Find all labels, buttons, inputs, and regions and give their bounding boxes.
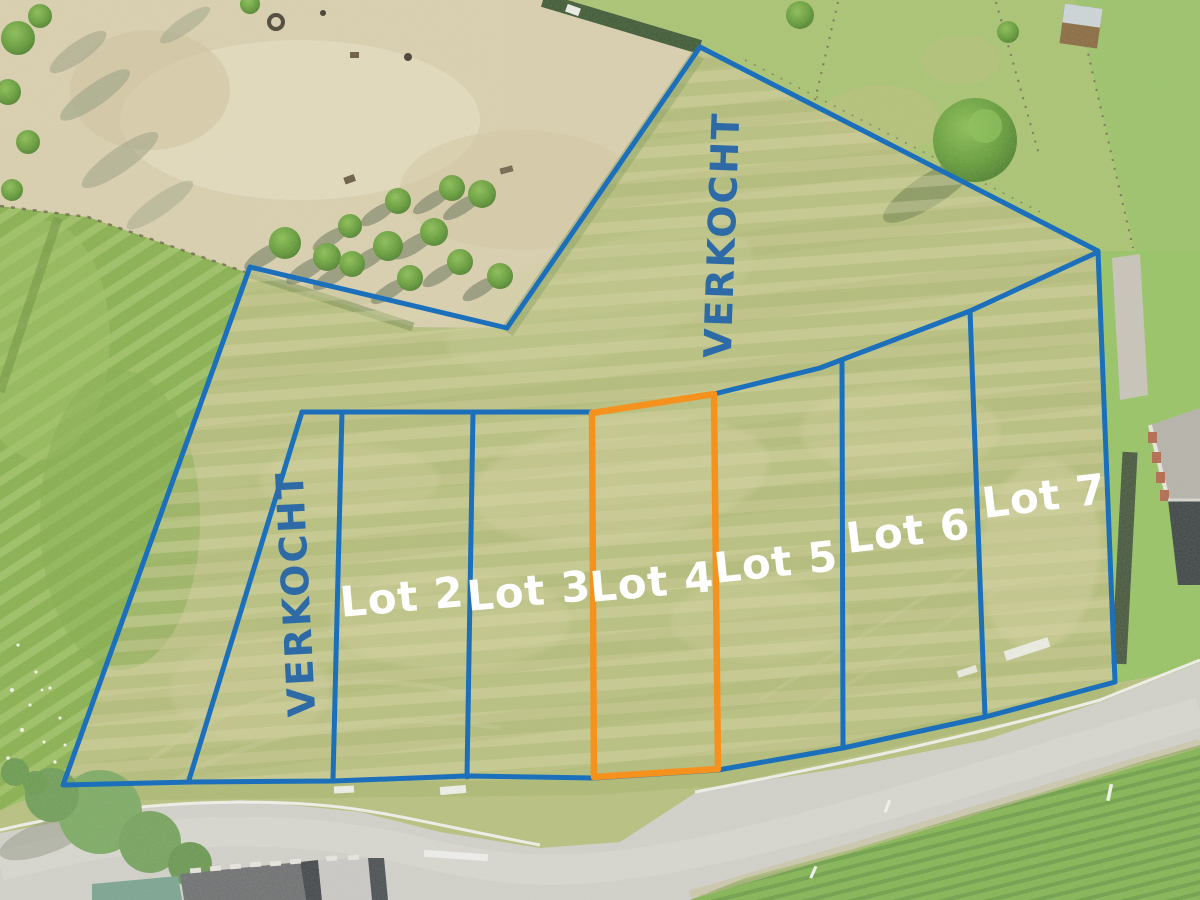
aerial-lot-map: VERKOCHT VERKOCHT Lot 2 Lot 3 Lot 4 Lot … — [0, 0, 1200, 900]
photo-grain — [0, 0, 1200, 900]
sold-label-top: VERKOCHT — [696, 111, 749, 359]
aerial-photo-background — [0, 0, 1200, 900]
